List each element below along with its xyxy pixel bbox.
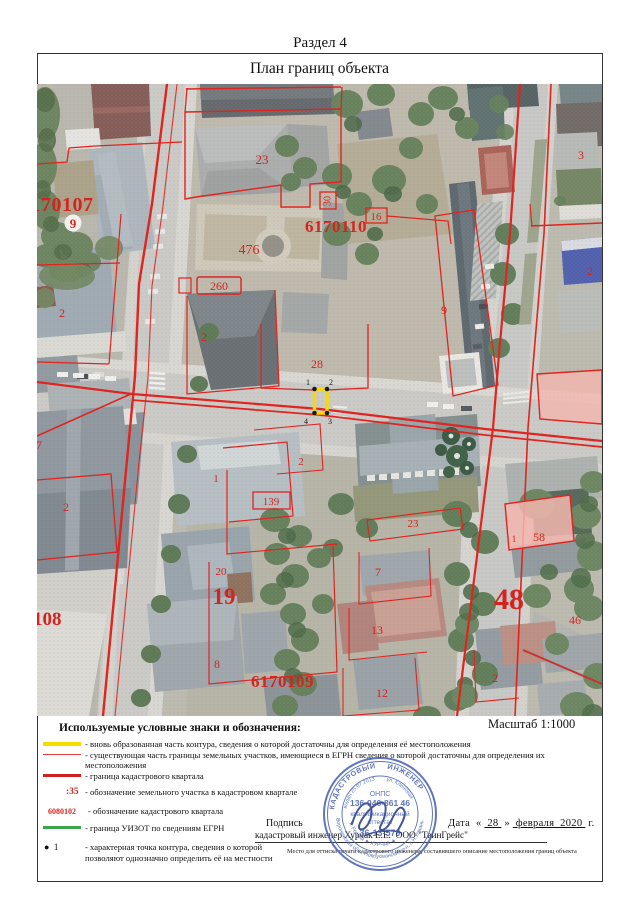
svg-text:28: 28 [311, 357, 323, 371]
svg-text:1: 1 [213, 473, 219, 485]
svg-text:ОНПС: ОНПС [370, 791, 391, 798]
svg-text:2: 2 [59, 306, 65, 320]
svg-text:1: 1 [512, 534, 517, 544]
svg-text:23: 23 [408, 518, 420, 530]
svg-text:квалификационный: квалификационный [350, 810, 410, 818]
svg-text:30: 30 [322, 196, 333, 206]
svg-text:46: 46 [569, 613, 581, 627]
svg-text:2: 2 [492, 671, 498, 685]
svg-text:2: 2 [63, 500, 69, 514]
svg-text:13: 13 [371, 623, 383, 637]
svg-text:2: 2 [329, 378, 333, 387]
svg-text:9: 9 [70, 216, 77, 231]
svg-text:1: 1 [306, 378, 310, 387]
svg-text:20: 20 [216, 566, 228, 578]
svg-text:9: 9 [441, 303, 447, 317]
svg-text:2: 2 [298, 456, 304, 468]
svg-text:2: 2 [587, 264, 593, 278]
svg-text:3: 3 [328, 417, 332, 426]
svg-text:260: 260 [210, 279, 228, 293]
svg-text:476: 476 [239, 243, 260, 258]
svg-text:6170109: 6170109 [251, 672, 314, 691]
svg-text:139: 139 [263, 496, 280, 508]
svg-text:58: 58 [533, 530, 545, 544]
svg-text:8: 8 [214, 657, 220, 671]
svg-text:23: 23 [256, 152, 269, 167]
svg-text:6170110: 6170110 [305, 217, 367, 236]
svg-text:108: 108 [37, 609, 62, 630]
svg-text:2: 2 [201, 330, 207, 344]
svg-text:48: 48 [494, 583, 524, 616]
svg-text:12: 12 [376, 686, 388, 700]
svg-text:7: 7 [375, 565, 381, 579]
svg-text:7: 7 [37, 438, 42, 452]
svg-text:19: 19 [213, 584, 236, 609]
svg-text:16: 16 [371, 211, 383, 223]
svg-text:3: 3 [578, 148, 584, 162]
svg-text:6170107: 6170107 [37, 194, 94, 216]
